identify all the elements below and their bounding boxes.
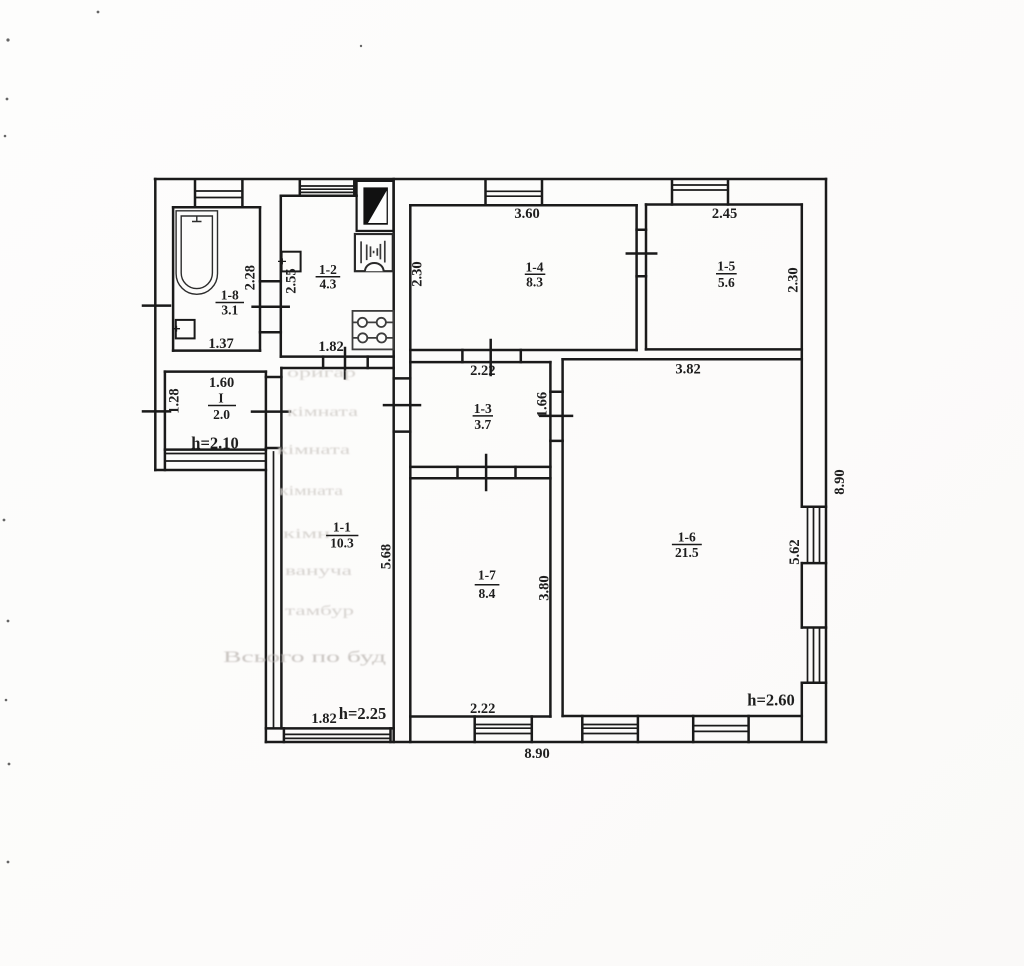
svg-text:8.3: 8.3 (526, 275, 543, 290)
svg-text:2.55: 2.55 (284, 268, 300, 293)
svg-text:4.3: 4.3 (319, 276, 336, 291)
svg-text:тамбур: тамбур (285, 604, 354, 619)
svg-text:8.4: 8.4 (478, 586, 495, 601)
svg-text:3.82: 3.82 (675, 362, 700, 378)
svg-text:кімната: кімната (279, 484, 344, 499)
svg-text:2.30: 2.30 (410, 261, 426, 286)
svg-text:5.62: 5.62 (787, 539, 803, 564)
svg-text:1-4: 1-4 (526, 260, 544, 275)
svg-text:1.28: 1.28 (167, 388, 183, 413)
svg-text:кімната: кімната (277, 443, 351, 458)
svg-text:3.60: 3.60 (514, 206, 539, 222)
svg-text:h=2.25: h=2.25 (339, 704, 386, 723)
svg-text:5.6: 5.6 (718, 275, 735, 290)
svg-text:I: I (218, 391, 223, 406)
svg-text:3.1: 3.1 (221, 302, 238, 317)
svg-text:3.80: 3.80 (537, 575, 553, 600)
svg-text:1-2: 1-2 (319, 262, 337, 277)
svg-text:1.66: 1.66 (535, 392, 551, 417)
svg-text:оригар: оригар (287, 366, 356, 381)
svg-text:h=2.10: h=2.10 (191, 434, 238, 453)
svg-text:Всього по буд: Всього по буд (223, 649, 386, 666)
svg-text:кімн: кімн (283, 527, 331, 542)
svg-text:2.0: 2.0 (213, 407, 230, 422)
svg-text:21.5: 21.5 (675, 545, 699, 560)
svg-text:1-8: 1-8 (221, 287, 239, 302)
svg-text:2.22: 2.22 (470, 363, 495, 379)
svg-text:8.90: 8.90 (524, 746, 549, 762)
svg-text:1.37: 1.37 (208, 336, 233, 352)
svg-text:1-6: 1-6 (678, 529, 696, 544)
svg-text:8.90: 8.90 (832, 469, 848, 494)
svg-text:2.30: 2.30 (785, 267, 801, 292)
svg-text:1.60: 1.60 (209, 375, 234, 391)
svg-text:1-1: 1-1 (333, 520, 351, 535)
svg-text:1-7: 1-7 (478, 568, 496, 583)
svg-text:вануча: вануча (285, 564, 353, 579)
svg-text:h=2.60: h=2.60 (747, 691, 794, 710)
svg-text:10.3: 10.3 (330, 536, 354, 551)
svg-text:1.82: 1.82 (311, 711, 336, 727)
svg-text:1.82: 1.82 (318, 339, 343, 355)
svg-text:1-5: 1-5 (717, 259, 735, 274)
svg-text:кімната: кімната (287, 405, 359, 420)
svg-text:2.28: 2.28 (243, 265, 259, 290)
svg-text:2.45: 2.45 (712, 206, 737, 222)
svg-text:5.68: 5.68 (379, 544, 395, 569)
svg-text:1-3: 1-3 (474, 401, 492, 416)
svg-text:3.7: 3.7 (474, 417, 491, 432)
svg-text:2.22: 2.22 (470, 701, 495, 717)
